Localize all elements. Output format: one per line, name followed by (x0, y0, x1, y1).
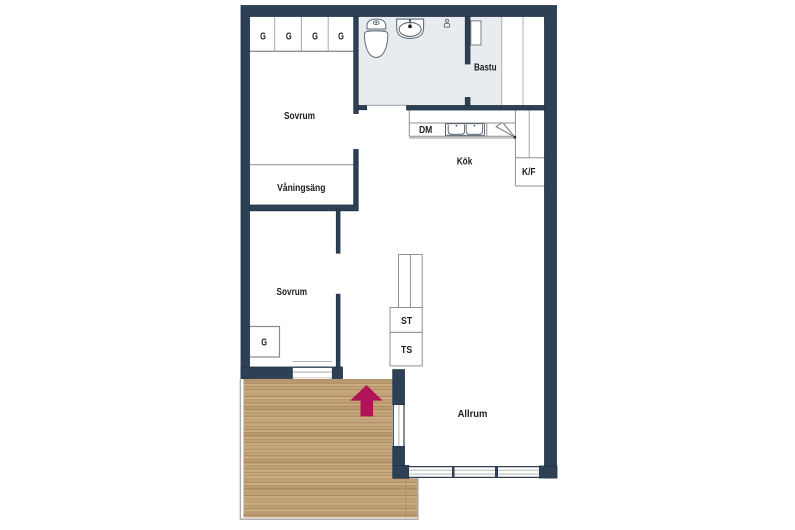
svg-text:Bastu: Bastu (474, 63, 497, 74)
svg-text:G: G (312, 31, 318, 42)
svg-text:ST: ST (401, 316, 413, 327)
svg-text:DM: DM (419, 125, 432, 136)
svg-text:TS: TS (401, 345, 412, 356)
svg-text:Våningsäng: Våningsäng (277, 182, 325, 194)
svg-text:G: G (260, 31, 266, 42)
svg-text:Allrum: Allrum (458, 409, 488, 420)
svg-text:Kök: Kök (457, 157, 473, 168)
svg-text:G: G (286, 31, 292, 42)
svg-text:K/F: K/F (522, 167, 536, 178)
svg-text:G: G (261, 337, 267, 348)
svg-text:Sovrum: Sovrum (284, 111, 315, 122)
svg-text:G: G (338, 31, 344, 42)
svg-text:Sovrum: Sovrum (277, 287, 308, 298)
